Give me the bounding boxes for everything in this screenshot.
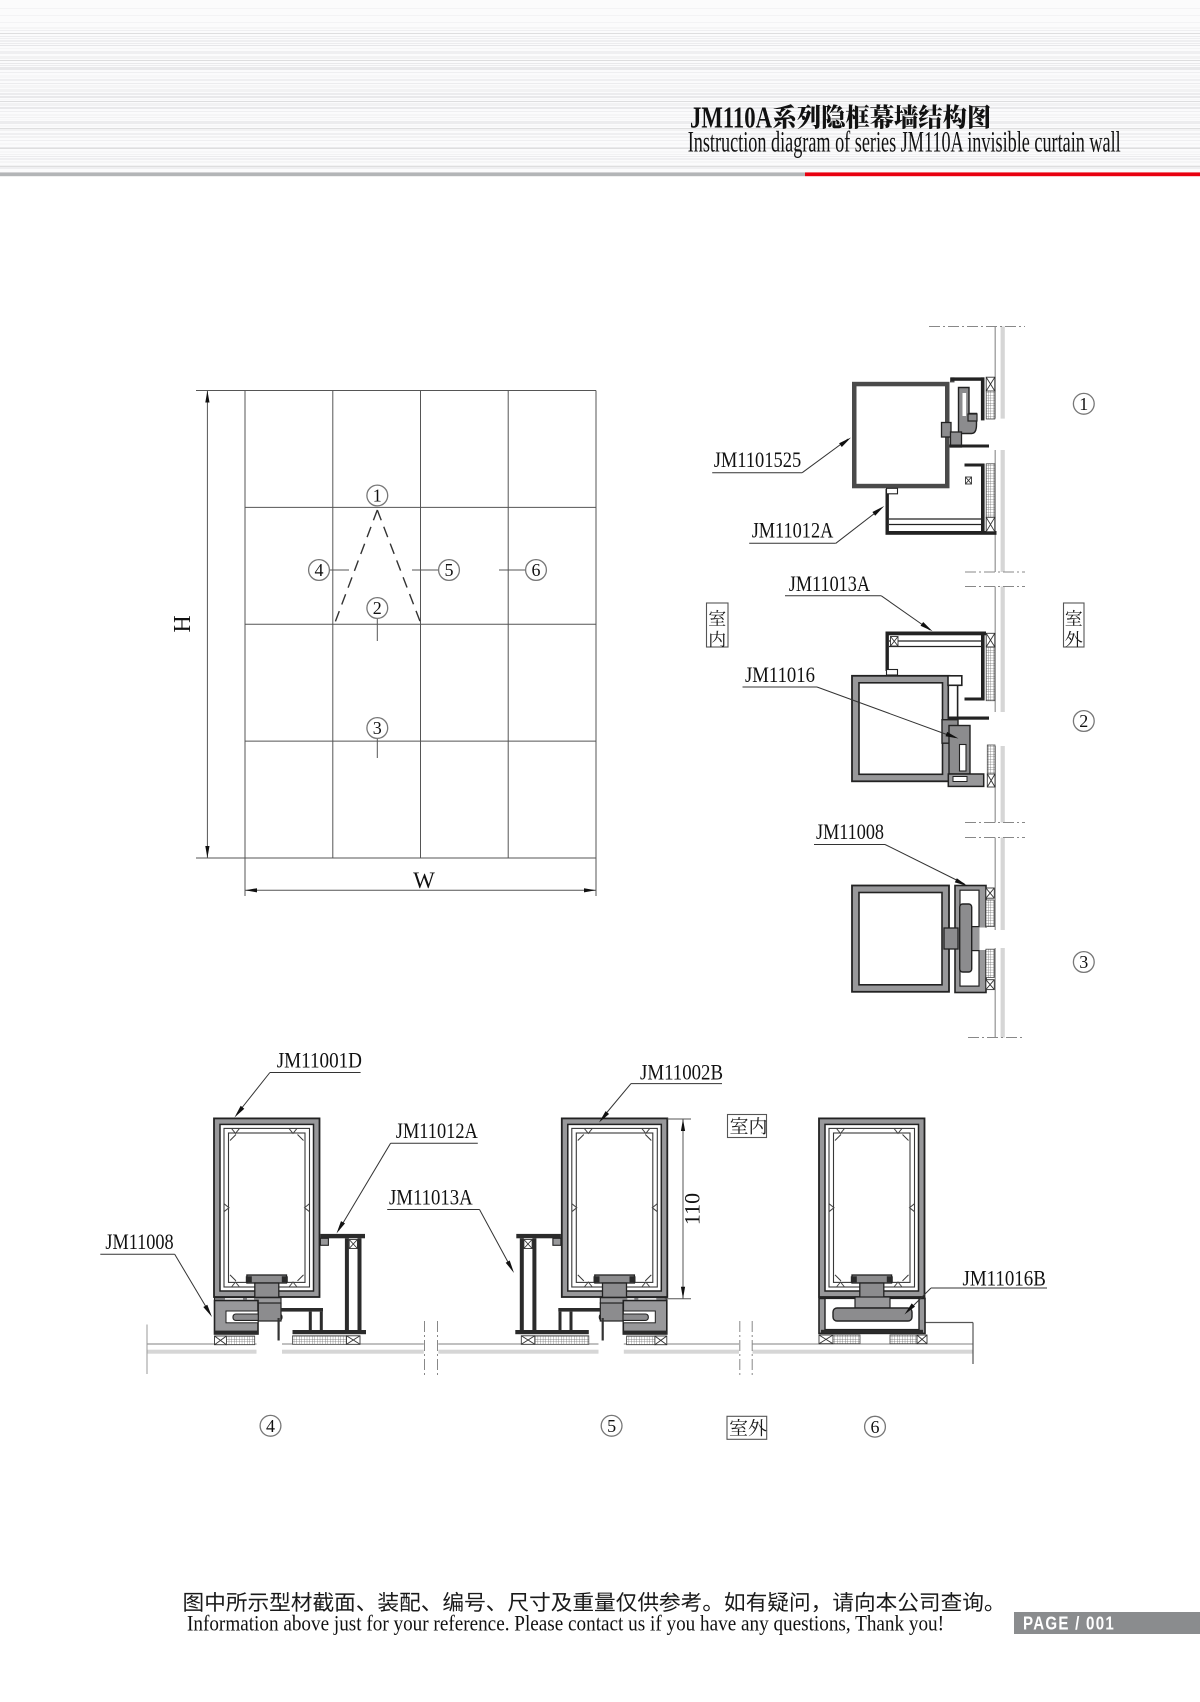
svg-text:5: 5 [445,560,454,580]
svg-text:JM11008: JM11008 [816,819,884,844]
svg-text:JM1101525: JM1101525 [714,447,802,472]
svg-text:JM11012A: JM11012A [396,1118,478,1143]
svg-text:6: 6 [532,560,541,580]
svg-text:110: 110 [680,1193,705,1225]
svg-text:JM11013A: JM11013A [789,571,870,596]
svg-text:JM11008: JM11008 [105,1229,173,1254]
svg-text:4: 4 [315,560,324,580]
svg-text:PAGE / 001: PAGE / 001 [1023,1614,1115,1634]
svg-text:Information above just for you: Information above just for your referenc… [187,1611,944,1636]
svg-text:H: H [170,615,196,632]
svg-text:JM11012A: JM11012A [752,518,834,543]
svg-text:6: 6 [871,1417,880,1437]
svg-text:1: 1 [373,486,382,506]
svg-text:2: 2 [373,598,382,618]
svg-text:JM11002B: JM11002B [640,1060,723,1085]
svg-text:JM11016B: JM11016B [963,1266,1046,1291]
svg-text:5: 5 [607,1416,616,1436]
svg-text:JM11013A: JM11013A [389,1185,473,1210]
svg-text:W: W [413,868,435,893]
svg-text:4: 4 [266,1416,275,1436]
svg-text:3: 3 [373,718,382,738]
svg-text:Instruction diagram of series: Instruction diagram of series JM110A inv… [688,126,1121,159]
svg-text:JM11001D: JM11001D [277,1048,362,1073]
svg-text:2: 2 [1079,711,1088,731]
svg-text:JM11016: JM11016 [745,662,815,687]
svg-text:3: 3 [1079,952,1088,972]
svg-text:1: 1 [1079,394,1088,414]
